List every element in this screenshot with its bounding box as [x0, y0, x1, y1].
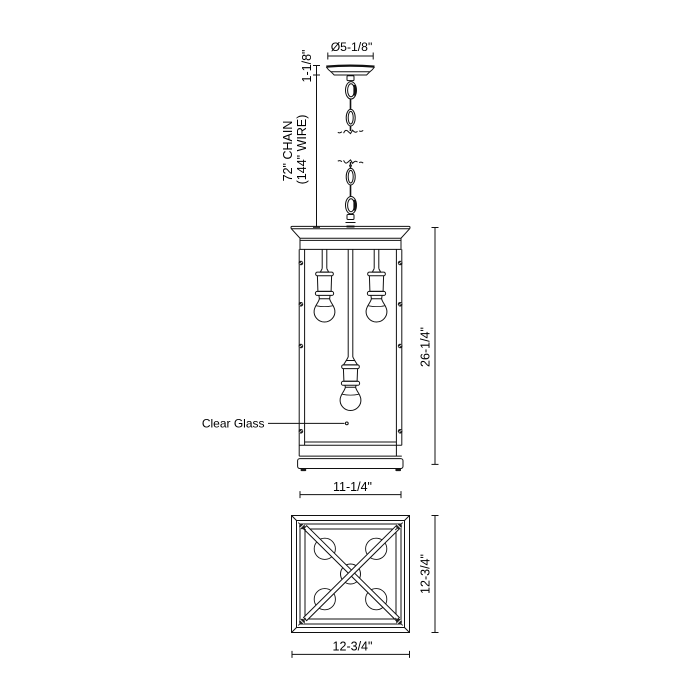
- svg-text:72" CHAIN: 72" CHAIN: [281, 121, 295, 182]
- svg-text:12-3/4": 12-3/4": [333, 640, 373, 654]
- svg-text:12-3/4": 12-3/4": [419, 554, 433, 594]
- svg-text:Clear Glass: Clear Glass: [202, 417, 265, 431]
- svg-text:Ø5-1/8": Ø5-1/8": [331, 40, 373, 54]
- svg-text:26-1/4": 26-1/4": [419, 327, 433, 367]
- svg-text:11-1/4": 11-1/4": [333, 480, 372, 494]
- svg-text:(144" WIRE): (144" WIRE): [295, 115, 309, 185]
- svg-text:1-1/8": 1-1/8": [300, 50, 314, 83]
